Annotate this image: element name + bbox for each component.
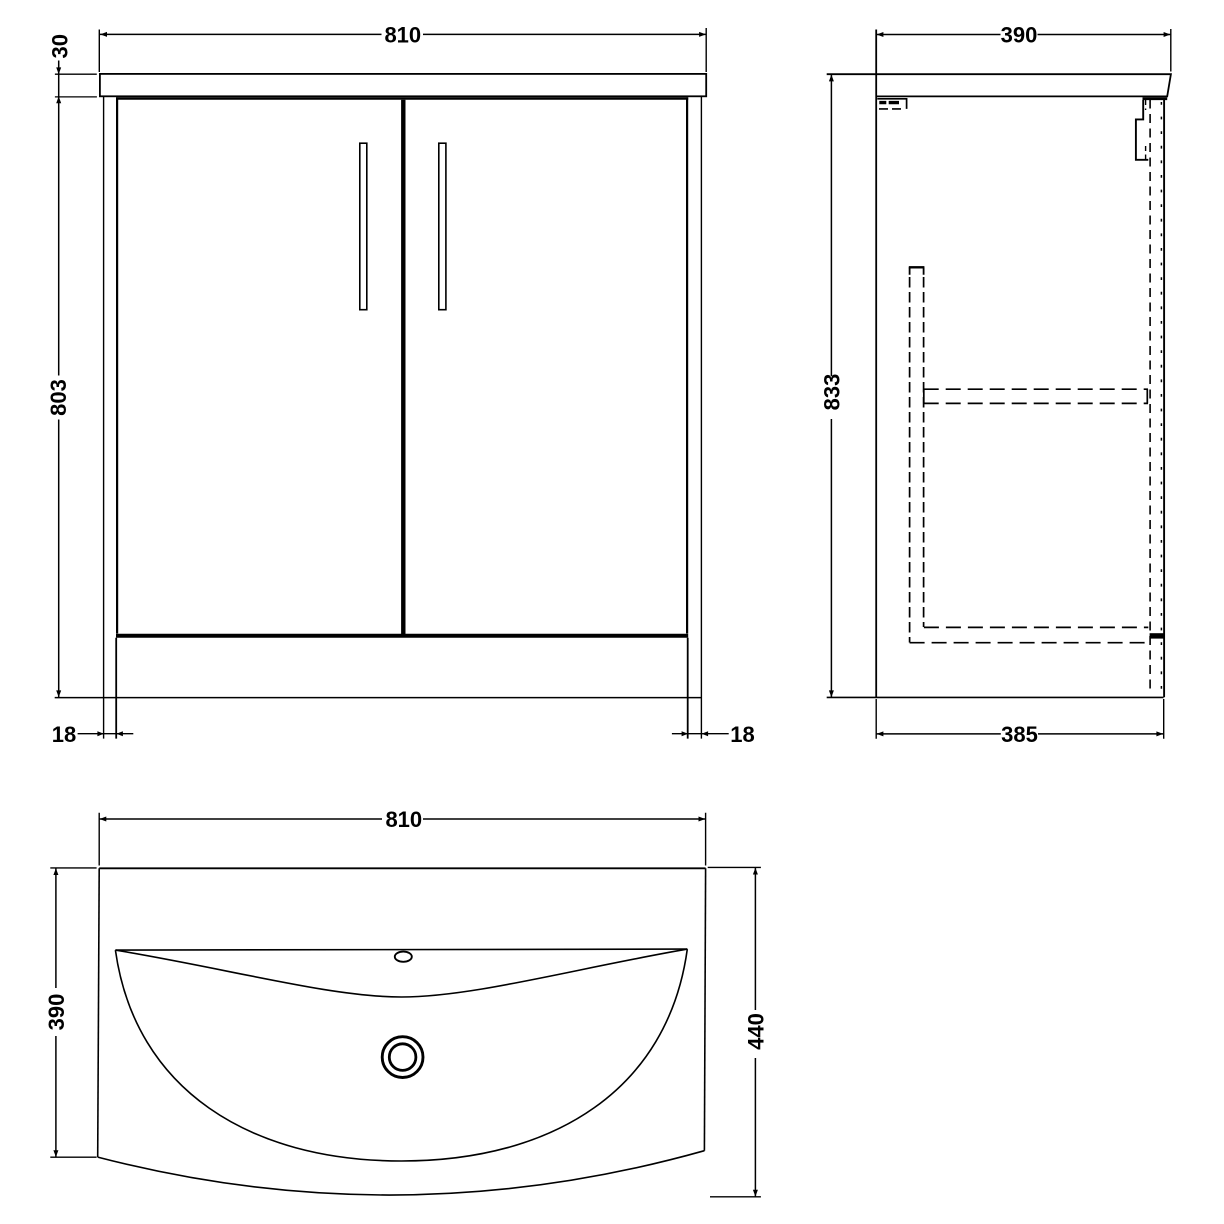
svg-text:390: 390 <box>1001 23 1038 48</box>
svg-text:440: 440 <box>743 1013 768 1050</box>
svg-text:385: 385 <box>1001 722 1038 747</box>
svg-text:810: 810 <box>385 807 422 832</box>
svg-text:390: 390 <box>44 994 69 1031</box>
svg-text:18: 18 <box>730 722 754 747</box>
svg-text:18: 18 <box>52 722 76 747</box>
svg-text:810: 810 <box>384 22 421 47</box>
svg-text:803: 803 <box>46 379 71 416</box>
svg-text:30: 30 <box>47 34 72 58</box>
svg-text:833: 833 <box>820 374 845 411</box>
